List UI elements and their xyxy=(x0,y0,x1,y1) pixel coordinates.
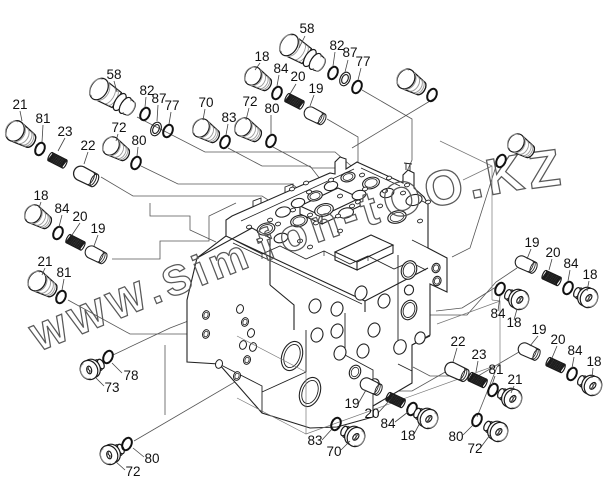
svg-text:84: 84 xyxy=(54,201,70,216)
svg-text:20: 20 xyxy=(545,245,560,260)
svg-text:72: 72 xyxy=(467,441,482,456)
svg-text:73: 73 xyxy=(104,380,119,395)
svg-text:18: 18 xyxy=(400,428,415,443)
svg-text:80: 80 xyxy=(448,429,463,444)
svg-text:18: 18 xyxy=(506,315,521,330)
svg-text:83: 83 xyxy=(307,433,322,448)
svg-text:77: 77 xyxy=(355,54,370,69)
svg-text:23: 23 xyxy=(57,124,72,139)
svg-text:58: 58 xyxy=(299,21,314,36)
svg-text:83: 83 xyxy=(221,110,236,125)
svg-text:19: 19 xyxy=(308,81,323,96)
svg-text:77: 77 xyxy=(164,98,179,113)
svg-text:20: 20 xyxy=(550,332,565,347)
svg-text:19: 19 xyxy=(344,396,359,411)
svg-text:18: 18 xyxy=(582,267,597,282)
svg-text:84: 84 xyxy=(273,61,289,76)
svg-text:81: 81 xyxy=(35,111,50,126)
svg-text:84: 84 xyxy=(563,256,579,271)
svg-text:72: 72 xyxy=(242,94,257,109)
svg-text:70: 70 xyxy=(326,444,341,459)
svg-text:20: 20 xyxy=(364,406,379,421)
svg-text:80: 80 xyxy=(264,101,279,116)
svg-text:19: 19 xyxy=(524,235,539,250)
svg-text:21: 21 xyxy=(37,254,52,269)
svg-text:20: 20 xyxy=(72,209,87,224)
svg-text:18: 18 xyxy=(586,354,601,369)
svg-text:84: 84 xyxy=(490,306,506,321)
svg-text:21: 21 xyxy=(12,97,27,112)
svg-text:81: 81 xyxy=(56,265,71,280)
svg-text:22: 22 xyxy=(80,138,95,153)
svg-text:18: 18 xyxy=(254,49,269,64)
svg-text:19: 19 xyxy=(90,221,105,236)
svg-text:23: 23 xyxy=(471,347,486,362)
svg-text:70: 70 xyxy=(198,95,213,110)
svg-text:58: 58 xyxy=(106,67,121,82)
svg-text:72: 72 xyxy=(125,464,140,479)
svg-text:78: 78 xyxy=(123,368,138,383)
svg-text:84: 84 xyxy=(380,416,396,431)
svg-text:80: 80 xyxy=(131,133,146,148)
svg-text:84: 84 xyxy=(567,343,583,358)
svg-text:21: 21 xyxy=(507,372,522,387)
svg-text:18: 18 xyxy=(33,188,48,203)
svg-text:22: 22 xyxy=(450,334,465,349)
svg-text:80: 80 xyxy=(144,451,159,466)
svg-text:20: 20 xyxy=(290,69,305,84)
svg-text:19: 19 xyxy=(531,322,546,337)
svg-text:81: 81 xyxy=(488,362,503,377)
svg-text:72: 72 xyxy=(111,120,126,135)
